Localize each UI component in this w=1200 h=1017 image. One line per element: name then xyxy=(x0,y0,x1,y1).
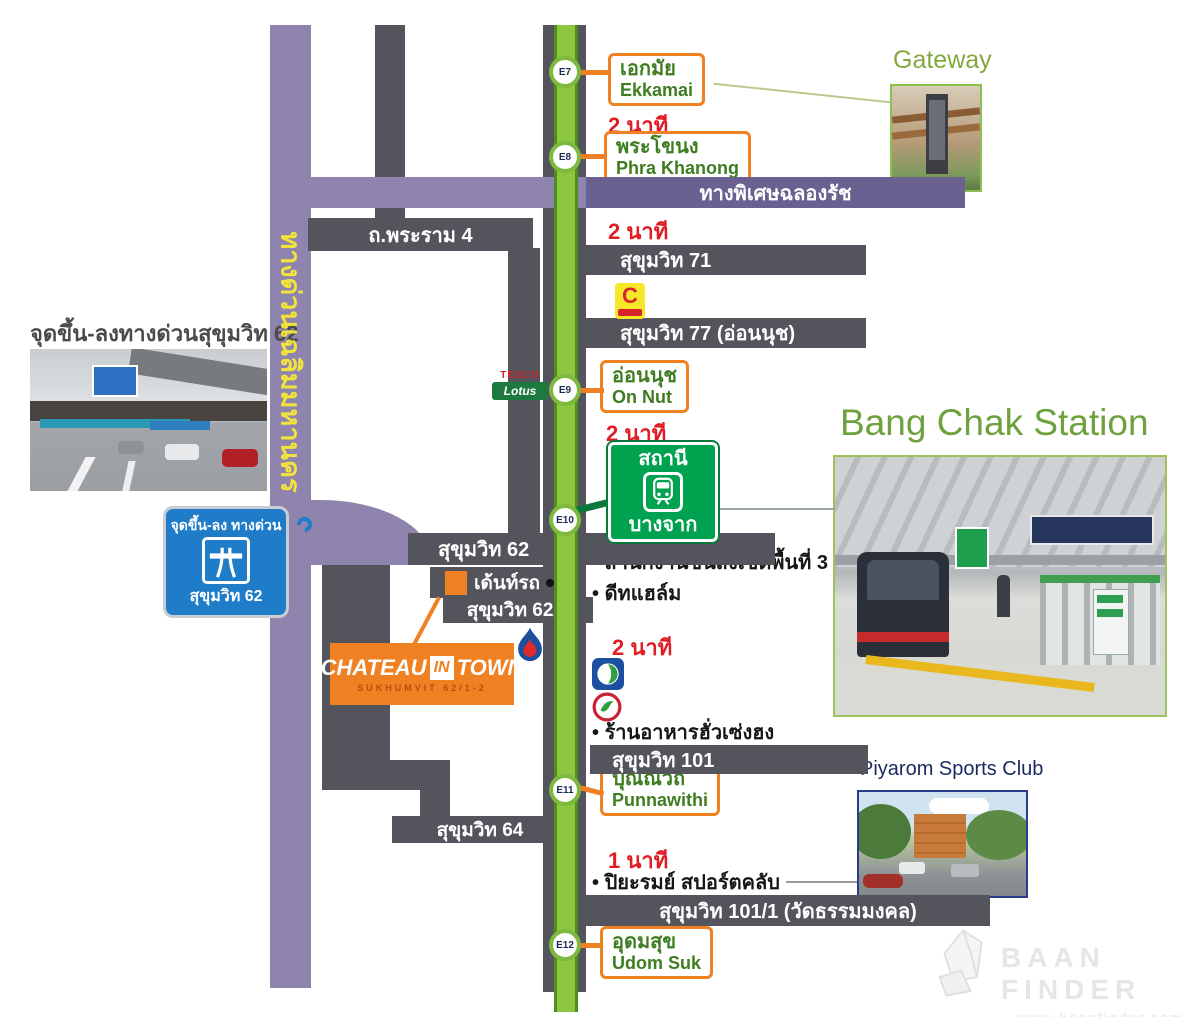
toll-photo-lane-line2 xyxy=(121,461,135,491)
dent-location-dot xyxy=(546,579,554,587)
bts-sign-bottom: บางจาก xyxy=(629,515,698,535)
transit-map: ทางด่วนเฉลิมมหานคร ถ.พระราม 4 ทางพิเศษฉล… xyxy=(0,0,1200,1017)
chateau-name1: CHATEAU xyxy=(321,655,427,681)
ekkamai-thai: เอกมัย xyxy=(620,59,693,81)
bangchak-photo-namesign xyxy=(1030,515,1154,545)
road-chalong-rat-labelband: ทางพิเศษฉลองรัช xyxy=(586,177,965,208)
bangchak-photo-train-stripe xyxy=(857,632,949,642)
udomsuk-en: Udom Suk xyxy=(612,954,701,973)
road-suk62-label: สุขุมวิท 62 xyxy=(408,533,529,565)
road-suk62: สุขุมวิท 62 xyxy=(408,533,775,565)
toll-sign-line2: สุขุมวิท 62 xyxy=(189,584,262,609)
bangchak-photo xyxy=(833,455,1167,717)
e9-connector xyxy=(578,388,604,393)
baanfinder-logo-icon xyxy=(935,924,991,1007)
station-circle-e8: E8 xyxy=(549,141,581,173)
e7-connector xyxy=(578,70,608,75)
road-suk77: สุขุมวิท 77 (อ่อนนุช) xyxy=(586,318,866,348)
station-circle-e12: E12 xyxy=(549,929,581,961)
piyarom-photo-car1 xyxy=(899,862,925,874)
onnut-thai: อ่อนนุช xyxy=(612,366,677,388)
ekkamai-en: Ekkamai xyxy=(620,81,693,100)
bangchak-photo-greensign xyxy=(955,527,989,569)
toll-photo-car-red xyxy=(222,449,258,467)
chateau-name2: IN xyxy=(434,659,450,677)
toll-photo-booth xyxy=(150,421,210,430)
road-suk71-label: สุขุมวิท 71 xyxy=(586,244,711,276)
bangchak-photo-smallsign-green1 xyxy=(1097,595,1123,603)
piyarom-photo-cloud xyxy=(929,798,989,814)
road-suk64: สุขุมวิท 64 xyxy=(392,816,568,843)
toll-entry-sign: จุดขึ้น-ลง ทางด่วน สุขุมวิท 62 xyxy=(163,506,289,618)
toll-sign-line1: จุดขึ้น-ลง ทางด่วน xyxy=(171,515,282,537)
piyarom-caption: Piyarom Sports Club xyxy=(860,758,1043,781)
toll-photo-car-gray xyxy=(118,441,144,454)
road-step-horizontal xyxy=(322,760,450,790)
ekkamai-gateway-line xyxy=(713,83,890,104)
road-rama4: ถ.พระราม 4 xyxy=(308,218,533,251)
piyarom-photo-tree-right xyxy=(966,810,1028,860)
bangchak-photo-ceiling xyxy=(835,457,1165,567)
chateau-name3: TOWN xyxy=(457,655,524,681)
phrakhanong-en: Phra Khanong xyxy=(616,159,739,178)
gateway-photo xyxy=(890,84,982,192)
baanfinder-url: www.baanfinder.com xyxy=(1001,1010,1200,1017)
station-circle-e11: E11 xyxy=(549,774,581,806)
dent-shop-marker xyxy=(445,571,467,595)
piyarom-photo-building xyxy=(914,814,966,858)
onnut-en: On Nut xyxy=(612,388,677,407)
gateway-caption: Gateway xyxy=(893,46,992,75)
road-suk71: สุขุมวิท 71 xyxy=(586,245,866,275)
lotus-box: Lotus xyxy=(492,382,548,400)
road-suk101-label: สุขุมวิท 101 xyxy=(590,744,714,776)
train-icon xyxy=(643,472,683,512)
bangchak-bts-sign: สถานี บางจาก xyxy=(608,442,718,542)
road-rama4-connector xyxy=(508,248,540,565)
punnawithi-en: Punnawithi xyxy=(612,791,708,810)
toll-photo-canopy xyxy=(30,401,267,421)
bangchak-photo-smallsign-green2 xyxy=(1097,609,1123,617)
piyarom-photo-flowers xyxy=(863,874,903,888)
road-suk101: สุขุมวิท 101 xyxy=(590,745,868,774)
expressway-chalerm-label: ทางด่วนเฉลิมมหานคร xyxy=(270,231,313,492)
chateau-logo: CHATEAU IN TOWN SUKHUMVIT 62/1-2 xyxy=(330,643,514,705)
toll-photo-lane-line1 xyxy=(64,457,95,491)
red-circle-logo xyxy=(592,692,622,727)
road-suk64-label: สุขุมวิท 64 xyxy=(437,815,524,845)
road-suk1011: สุขุมวิท 101/1 (วัดธรรมมงคล) xyxy=(586,895,990,926)
toll-photo-caption: จุดขึ้น-ลงทางด่วนสุขุมวิท 62 xyxy=(30,316,299,351)
chateau-name2-box: IN xyxy=(430,656,454,680)
bangchak-photo-rail-green xyxy=(1040,575,1160,583)
bangchak-photo-windshield xyxy=(867,560,939,600)
station-box-udomsuk: อุดมสุข Udom Suk xyxy=(600,926,713,979)
bigc-strip xyxy=(618,309,642,316)
tesco-text: TESCO xyxy=(492,370,548,381)
piyarom-photo-tree-left xyxy=(857,804,911,859)
piyarom-photo xyxy=(857,790,1028,898)
lotus-text: Lotus xyxy=(504,384,537,398)
toll-photo xyxy=(30,349,267,491)
baanfinder-title: BAAN FINDER xyxy=(1001,942,1200,1006)
baanfinder-watermark: BAAN FINDER www.baanfinder.com xyxy=(935,924,1200,1017)
piyarom-photo-car2 xyxy=(951,864,979,877)
station-circle-e10: E10 xyxy=(549,504,581,536)
bts-sign-top: สถานี xyxy=(638,449,687,469)
road-suk1011-label: สุขุมวิท 101/1 (วัดธรรมมงคล) xyxy=(659,895,917,927)
bangchak-photo-person xyxy=(997,575,1010,617)
bangchak-photo-line xyxy=(720,508,835,510)
piyarom-photo-line xyxy=(786,881,857,883)
road-suk77-label: สุขุมวิท 77 (อ่อนนุช) xyxy=(586,317,795,349)
motorway-icon xyxy=(202,537,250,584)
phrakhanong-thai: พระโขนง xyxy=(616,137,739,159)
station-circle-e7: E7 xyxy=(549,56,581,88)
dent-shop-label: เด้นท์รถ xyxy=(474,568,540,598)
udomsuk-thai: อุดมสุข xyxy=(612,932,701,954)
bigc-logo: C xyxy=(615,283,645,319)
e12-connector xyxy=(578,943,602,948)
chateau-connector-line xyxy=(411,596,441,647)
chateau-subtitle: SUKHUMVIT 62/1-2 xyxy=(357,683,487,693)
landmark-piyarom: ปิยะรมย์ สปอร์ตคลับ xyxy=(592,866,780,898)
tesco-lotus-logo: TESCO Lotus xyxy=(492,370,548,400)
toll-photo-flyover xyxy=(128,349,267,397)
road-rama4-label: ถ.พระราม 4 xyxy=(368,219,472,251)
toll-photo-sign xyxy=(92,365,138,397)
station-box-ekkamai: เอกมัย Ekkamai xyxy=(608,53,705,106)
e8-connector xyxy=(578,154,606,159)
bigc-letter: C xyxy=(622,283,638,309)
landmark-diethelm: ดีทแฮล์ม xyxy=(592,577,681,609)
gateway-photo-tower-panel xyxy=(929,100,945,160)
bangchak-oil-logo xyxy=(592,658,624,695)
station-box-onnut: อ่อนนุช On Nut xyxy=(600,360,689,413)
bangchak-title: Bang Chak Station xyxy=(840,402,1149,444)
road-chalong-rat-label: ทางพิเศษฉลองรัช xyxy=(699,177,851,209)
toll-photo-car-white xyxy=(165,444,199,460)
station-circle-e9: E9 xyxy=(549,374,581,406)
